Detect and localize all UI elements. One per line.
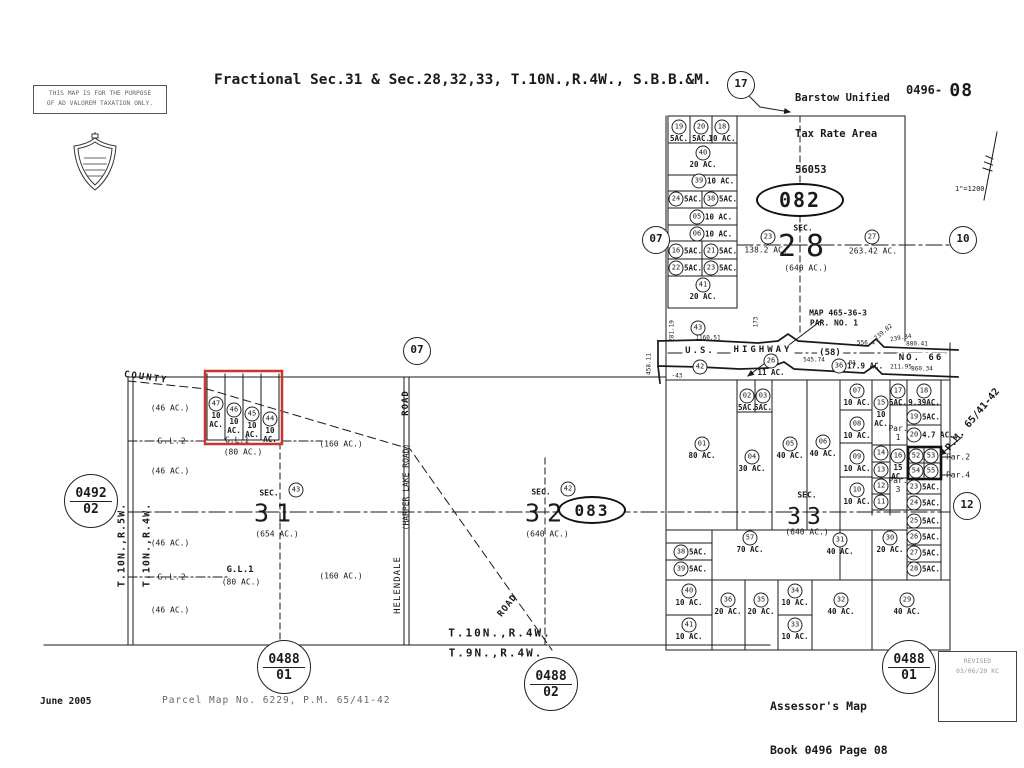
page-ref-circle: 12 xyxy=(953,492,981,520)
map-label: (46 AC.) xyxy=(151,605,190,614)
parcel-acreage: 10 AC. xyxy=(705,231,732,240)
map-label: G.L.2 xyxy=(157,572,186,581)
parcel-circle: 26 xyxy=(907,530,922,545)
sheet-book: 0488 xyxy=(530,669,572,685)
parcel-circle: 04 xyxy=(745,450,760,465)
parcel-acreage: 20 AC. xyxy=(689,293,716,302)
parcel-circle: 28 xyxy=(907,562,922,577)
parcel-acreage: 5AC. xyxy=(684,196,702,205)
sheet-page: 02 xyxy=(83,502,99,517)
map-label: T.10N.,R.4W. xyxy=(141,503,153,587)
parcel-circle: 18 xyxy=(917,384,932,399)
sheet-page: 01 xyxy=(276,668,292,683)
parcel-circle: 40 xyxy=(682,584,697,599)
parcel-acreage: 15 AC. xyxy=(889,464,907,481)
parcel-map-reference: Parcel Map No. 6229, P.M. 65/41-42 xyxy=(162,695,390,706)
parcel-acreage: 40 AC. xyxy=(809,450,836,459)
parcel-acreage: 10 AC. xyxy=(708,135,735,144)
parcel-acreage: 5AC. xyxy=(684,248,702,257)
parcel-acreage: 17.9 AC. xyxy=(847,363,883,372)
map-label: T.9N.,R.4W. xyxy=(449,648,544,661)
parcel-acreage: 5AC. xyxy=(692,135,710,144)
parcel-acreage: 10 AC. xyxy=(707,178,734,187)
assessor-map-block: Assessor's Map Book 0496 Page 08 San Ber… xyxy=(770,670,915,768)
map-label: (654 AC.) xyxy=(255,529,298,538)
parcel-circle: 05 xyxy=(690,210,705,225)
parcel-acreage: 5AC. xyxy=(670,135,688,144)
assessor-line1: Assessor's Map xyxy=(770,699,915,714)
parcel-circle: 20 xyxy=(907,428,922,443)
map-label: ROAD xyxy=(496,593,520,620)
parcel-circle: 31 xyxy=(833,533,848,548)
map-label: -43 xyxy=(672,374,683,381)
map-label: (640 AC.) xyxy=(784,263,827,272)
parcel-acreage: 20 AC. xyxy=(689,161,716,170)
map-label: 263.42 AC. xyxy=(849,246,897,255)
parcel-acreage: 5AC. xyxy=(684,265,702,274)
parcel-circle: 02 xyxy=(740,389,755,404)
map-label: 545.74 xyxy=(803,358,825,365)
parcel-acreage: 4.7 AC. xyxy=(922,432,954,441)
page-ref-circle: 07 xyxy=(403,337,431,365)
parcel-circle: 38 xyxy=(704,192,719,207)
map-label: (80 AC.) xyxy=(222,577,261,586)
parcel-circle: 29 xyxy=(900,593,915,608)
parcel-circle: 47 xyxy=(209,397,224,412)
parcel-circle: 16 xyxy=(891,449,906,464)
parcel-circle: 42 xyxy=(693,360,708,375)
parcel-circle: 34 xyxy=(788,584,803,599)
parcel-acreage: 10 AC. xyxy=(781,599,808,608)
parcel-circle: 21 xyxy=(704,244,719,259)
parcel-circle: 24 xyxy=(669,192,684,207)
parcel-acreage: 5AC. xyxy=(689,566,707,575)
parcel-acreage: 10 AC. xyxy=(843,498,870,507)
parcel-circle: 13 xyxy=(874,463,889,478)
parcel-acreage: 5AC. xyxy=(922,534,940,543)
revision-box: REVISED 03/06/20 KC xyxy=(938,651,1017,722)
road-route-badge: 083 xyxy=(558,496,626,524)
parcel-acreage: 70 AC. xyxy=(736,546,763,555)
revised-label: REVISED xyxy=(939,656,1016,666)
parcel-circle: 07 xyxy=(850,384,865,399)
parcel-acreage: 5AC. xyxy=(922,484,940,493)
parcel-circle: 39 xyxy=(674,562,689,577)
map-label: Par.2 xyxy=(946,452,970,461)
parcel-circle: 25 xyxy=(907,514,922,529)
parcel-acreage: 5AC. xyxy=(754,404,772,413)
parcel-circle: 09 xyxy=(850,450,865,465)
parcel-acreage: 40 AC. xyxy=(827,608,854,617)
map-label: 860.34 xyxy=(911,367,933,374)
parcel-circle: 32 xyxy=(834,593,849,608)
parcel-circle: 10 xyxy=(850,483,865,498)
page-ref-circle: 10 xyxy=(949,226,977,254)
parcel-circle: 39 xyxy=(692,174,707,189)
map-label: SEC. xyxy=(259,488,278,497)
map-sheet-circle: 048802 xyxy=(524,657,578,711)
sheet-book: 0492 xyxy=(70,486,112,502)
parcel-acreage: 5AC. xyxy=(889,399,907,408)
parcel-acreage: 10 AC. xyxy=(843,465,870,474)
parcel-circle: 01 xyxy=(695,437,710,452)
map-label: G.L.1 xyxy=(226,565,253,575)
map-label: SEC. xyxy=(797,490,816,499)
map-label: 33 xyxy=(787,504,827,530)
revised-date: 03/06/20 KC xyxy=(939,666,1016,676)
map-sheet-circle: 049202 xyxy=(64,474,118,528)
parcel-circle: 20 xyxy=(694,120,709,135)
parcel-circle: 11 xyxy=(874,495,889,510)
parcel-circle: 35 xyxy=(754,593,769,608)
parcel-circle: 05 xyxy=(783,437,798,452)
parcel-acreage: 10 AC. xyxy=(705,214,732,223)
parcel-circle: 43 xyxy=(289,483,304,498)
map-label: 211.95 xyxy=(890,365,912,372)
parcel-circle: 43 xyxy=(691,321,706,336)
map-label: PAR. NO. 1 xyxy=(810,318,858,327)
parcel-circle: 46 xyxy=(227,403,242,418)
map-label: 31 xyxy=(254,500,298,529)
parcel-circle: 57 xyxy=(743,531,758,546)
map-label: (HARPER LAKE ROAD) xyxy=(401,444,410,531)
parcel-circle: 40 xyxy=(696,146,711,161)
map-label: (160 AC.) xyxy=(319,439,362,448)
parcel-circle: 42 xyxy=(561,482,576,497)
sheet-book: 0488 xyxy=(263,652,305,668)
parcel-acreage: 10 AC. xyxy=(843,399,870,408)
parcel-acreage: 10 AC. xyxy=(675,633,702,642)
sheet-page: 02 xyxy=(543,685,559,700)
parcel-circle: 22 xyxy=(669,261,684,276)
map-date: June 2005 xyxy=(40,696,91,707)
parcel-circle: 33 xyxy=(788,618,803,633)
parcel-acreage: 10 AC. xyxy=(243,422,261,439)
parcel-acreage: 5AC. xyxy=(719,196,737,205)
parcel-circle: 41 xyxy=(696,278,711,293)
parcel-acreage: 11 AC. xyxy=(757,369,784,378)
parcel-circle: 45 xyxy=(245,407,260,422)
map-label: ROAD xyxy=(401,390,411,416)
parcel-circle: 16 xyxy=(669,244,684,259)
parcel-circle: 44 xyxy=(263,412,278,427)
parcel-acreage: 20 AC. xyxy=(747,608,774,617)
map-label: T.10N.,R.5W. xyxy=(116,503,128,587)
parcel-acreage: 5AC. xyxy=(922,500,940,509)
map-sheet-circle: 048801 xyxy=(257,640,311,694)
parcel-circle: 17 xyxy=(891,384,906,399)
page-ref-circle: 07 xyxy=(642,226,670,254)
parcel-circle: 19 xyxy=(672,120,687,135)
parcel-acreage: 5AC. xyxy=(922,550,940,559)
map-label: Par.4 xyxy=(946,470,970,479)
parcel-circle: 06 xyxy=(816,435,831,450)
parcel-circle: 23 xyxy=(907,480,922,495)
parcel-acreage: 5AC. xyxy=(719,248,737,257)
parcel-circle: 27 xyxy=(907,546,922,561)
parcel-acreage: 40 AC. xyxy=(776,452,803,461)
parcel-acreage: 20 AC. xyxy=(714,608,741,617)
assessor-map-page: Fractional Sec.31 & Sec.28,32,33, T.10N.… xyxy=(0,0,1024,768)
road-route-badge: 082 xyxy=(756,183,844,217)
map-label: NO. 66 xyxy=(897,353,946,363)
parcel-circle: 18 xyxy=(715,120,730,135)
assessor-line2: Book 0496 Page 08 xyxy=(770,743,915,758)
map-label: 173 xyxy=(754,317,761,328)
parcel-circle: 41 xyxy=(682,618,697,633)
parcel-circle: 03 xyxy=(756,389,771,404)
parcel-circle: 30 xyxy=(883,531,898,546)
parcel-circle: 36 xyxy=(721,593,736,608)
sheet-book: 0488 xyxy=(888,652,930,668)
parcel-acreage: 40 AC. xyxy=(826,548,853,557)
parcel-acreage: 80 AC. xyxy=(688,452,715,461)
parcel-acreage: 10 AC. xyxy=(843,432,870,441)
parcel-circle: 38 xyxy=(674,545,689,560)
map-label: (80 AC.) xyxy=(224,447,263,456)
map-label: 281.19 xyxy=(670,320,677,342)
parcel-circle: 54 xyxy=(909,464,924,479)
map-label: G.L.2 xyxy=(157,436,186,445)
parcel-acreage: 30 AC. xyxy=(738,465,765,474)
parcel-acreage: 5AC. xyxy=(719,265,737,274)
parcel-acreage: 10 AC. xyxy=(781,633,808,642)
parcel-circle: 55 xyxy=(924,464,939,479)
parcel-acreage: 5AC. xyxy=(922,566,940,575)
parcel-circle: 08 xyxy=(850,417,865,432)
parcel-circle: 23 xyxy=(704,261,719,276)
parcel-acreage: 20 AC. xyxy=(876,546,903,555)
map-label: (640 AC.) xyxy=(525,529,568,538)
parcel-circle: 53 xyxy=(924,449,939,464)
parcel-circle: 26 xyxy=(764,354,779,369)
map-label: Par. 1 xyxy=(888,424,907,442)
map-label: HELENDALE xyxy=(393,556,403,614)
map-label: U.S. xyxy=(683,346,717,356)
map-label: T.10N.,R.4W. xyxy=(448,628,551,641)
map-label: MAP 465-36-3 xyxy=(809,308,867,317)
parcel-acreage: 40 AC. xyxy=(893,608,920,617)
map-annotations: COUNTYROAD(HARPER LAKE ROAD)HELENDALEROA… xyxy=(0,0,1024,768)
map-label: (640 AC.) xyxy=(785,527,828,536)
map-label: P.M. 65/41-42 xyxy=(943,386,1002,453)
parcel-acreage: 10 AC. xyxy=(675,599,702,608)
map-label: (160 AC.) xyxy=(319,571,362,580)
map-label: (46 AC.) xyxy=(151,466,190,475)
parcel-circle: 19 xyxy=(907,410,922,425)
parcel-acreage: 10 AC. xyxy=(207,412,225,429)
parcel-acreage: 5AC. xyxy=(922,518,940,527)
map-label: 880.41 xyxy=(906,342,928,349)
map-label: 28 xyxy=(778,230,834,265)
page-ref-circle: 17 xyxy=(727,71,755,99)
parcel-acreage: 5AC. xyxy=(922,414,940,423)
parcel-circle: 14 xyxy=(874,446,889,461)
map-label: 458.11 xyxy=(647,353,654,375)
parcel-circle: 36 xyxy=(832,359,847,374)
parcel-acreage: 10 AC. xyxy=(872,411,890,428)
parcel-acreage: 10 AC. xyxy=(225,418,243,435)
parcel-circle: 24 xyxy=(907,496,922,511)
map-label: SEC. xyxy=(531,487,550,496)
parcel-acreage: 5AC. xyxy=(689,549,707,558)
parcel-acreage: 10 AC. xyxy=(261,427,279,444)
parcel-circle: 15 xyxy=(874,396,889,411)
map-label: 556.4 xyxy=(857,341,875,348)
parcel-acreage: 9.39AC. xyxy=(908,399,940,408)
parcel-circle: 23 xyxy=(761,230,776,245)
parcel-circle: 06 xyxy=(690,227,705,242)
parcel-circle: 27 xyxy=(865,230,880,245)
parcel-circle: 52 xyxy=(909,449,924,464)
map-label: (46 AC.) xyxy=(151,403,190,412)
map-label: HIGHWAY xyxy=(732,345,795,355)
map-label: COUNTY xyxy=(123,370,169,386)
map-label: 1160.51 xyxy=(695,336,720,343)
parcel-circle: 12 xyxy=(874,479,889,494)
map-label: (46 AC.) xyxy=(151,538,190,547)
